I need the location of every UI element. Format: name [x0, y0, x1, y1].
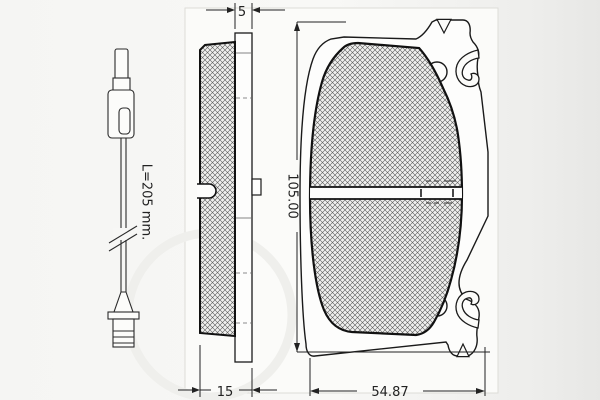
side-wear-slot: [197, 184, 216, 198]
side-backing-plate: [235, 33, 252, 362]
pad-front-view: 105.00 54.87: [285, 19, 491, 400]
side-plate-tab: [252, 179, 261, 195]
catalog-image: L=205 mm. 5: [0, 0, 600, 400]
sensor-tip-flange: [108, 312, 139, 319]
pad-height-dim-label: 105.00: [285, 173, 300, 219]
pad-width-dim-label: 54.87: [371, 385, 408, 400]
wear-groove: [300, 187, 470, 199]
sensor-connector-latch: [119, 108, 130, 134]
wear-sensor-view: [108, 49, 139, 347]
sensor-plug-collar: [113, 78, 130, 91]
brake-pad-technical-drawing: L=205 mm. 5: [0, 0, 600, 400]
plate-thickness-dim-label: 5: [238, 5, 246, 20]
total-thickness-dim-label: 15: [217, 385, 234, 400]
sensor-length-label: L=205 mm.: [139, 164, 154, 241]
sensor-plug-pin: [115, 49, 128, 80]
